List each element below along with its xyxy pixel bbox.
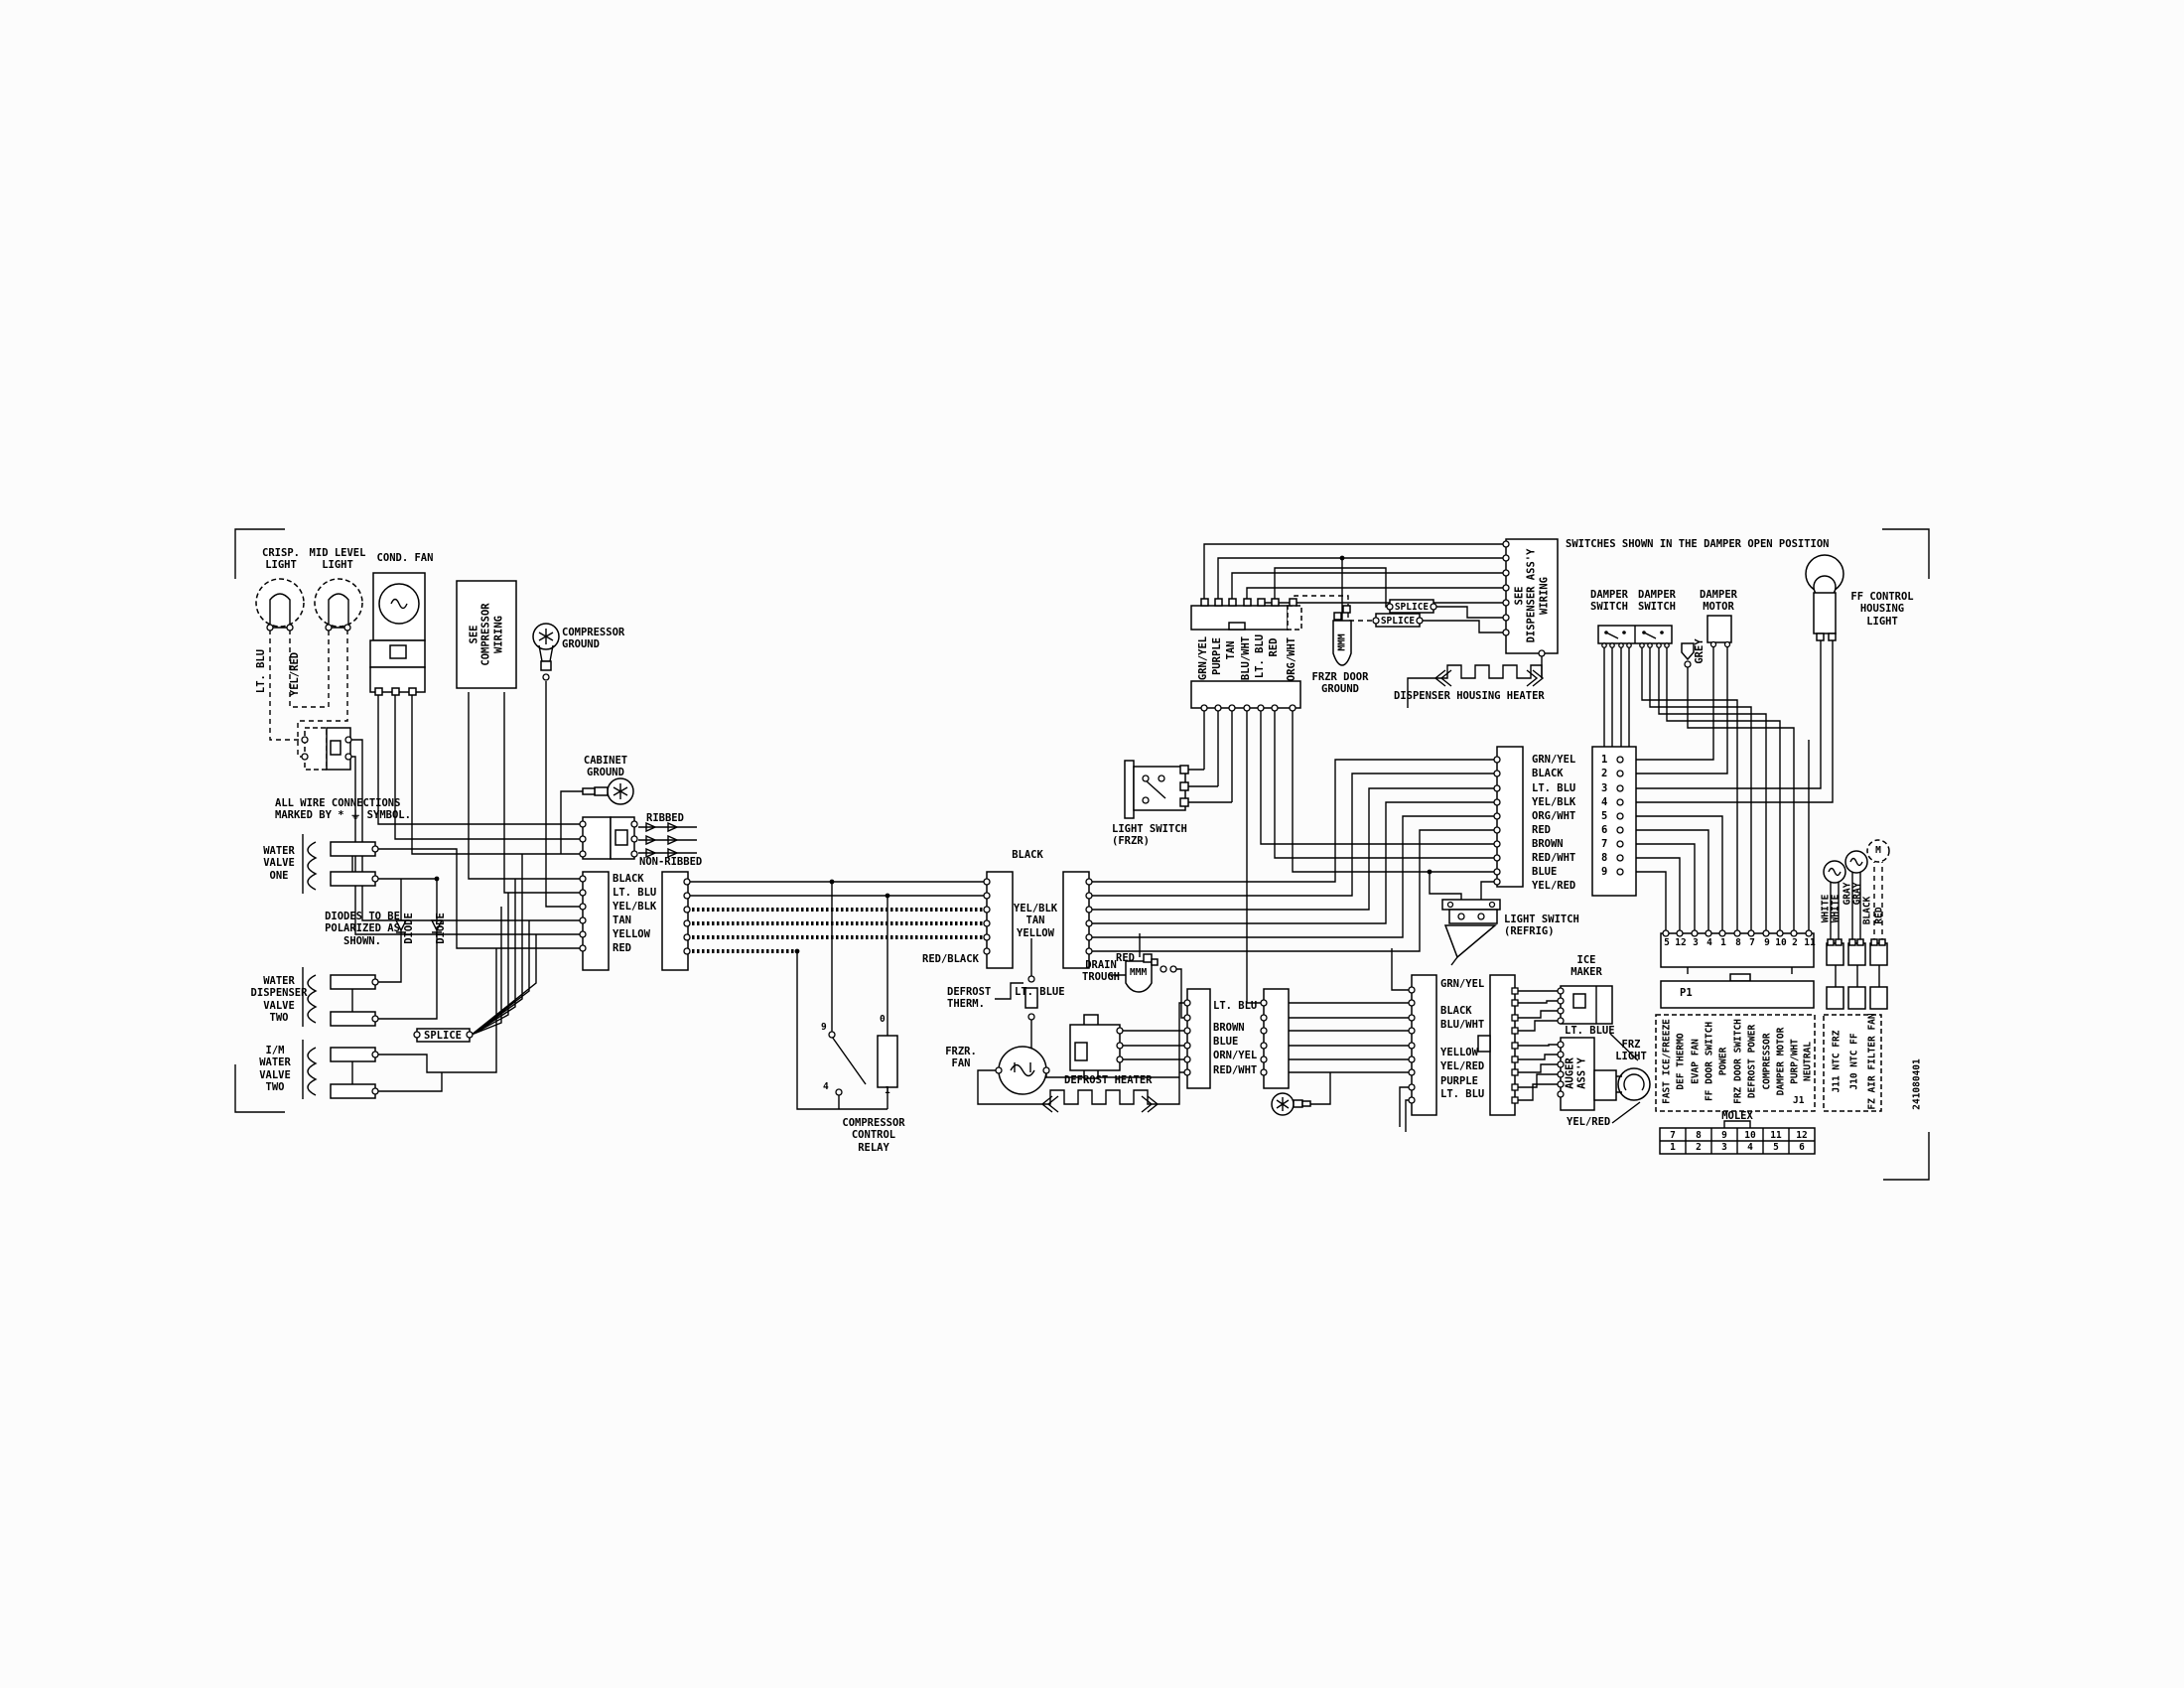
light-switch-frzr-symbol [1125, 761, 1188, 818]
lt-blue-label-mid: LT. BLUE [1015, 986, 1065, 998]
damper-switch-assembly [1598, 626, 1672, 643]
molex-top-1: 8 [1696, 1130, 1702, 1141]
disp-conn-orgwht: ORG/WHT [1286, 637, 1297, 681]
mmm-door-label: MMM [1336, 633, 1347, 650]
j11-signal-2: FZ AIR FILTER FAN [1866, 1013, 1877, 1109]
main-pin-4: 4 [1601, 796, 1607, 808]
p1-label: P1 [1680, 987, 1693, 999]
j1-signal-7: COMPRESSOR [1761, 1033, 1772, 1089]
molex-top-0: 7 [1670, 1130, 1676, 1141]
auger-conn-yelred: YEL/RED [1440, 1060, 1484, 1072]
water-dispenser-valve-two-label: WATER DISPENSER VALVE TWO [251, 975, 308, 1025]
harness-color-ltblu: LT. BLU [613, 887, 656, 899]
j1-signal-3: FF DOOR SWITCH [1704, 1022, 1714, 1101]
defrost-conn-ltblu: LT. BLU [1213, 1000, 1257, 1012]
compressor-control-relay-label: COMPRESSOR CONTROL RELAY [842, 1117, 904, 1154]
yel-red-label-right: YEL/RED [1567, 1116, 1610, 1128]
j1-signal-1: DEF THERMO [1675, 1033, 1686, 1089]
splice-label-left: SPLICE [424, 1030, 462, 1042]
crisp-light-bulb [256, 579, 304, 628]
defrost-connector-b [1264, 989, 1289, 1088]
disp-conn-red: RED [1268, 638, 1280, 657]
defrost-heater-label: DEFROST HEATER [1064, 1074, 1153, 1086]
defrost-conn-redwht: RED/WHT [1213, 1064, 1257, 1076]
board-pin-4: 1 [1720, 937, 1726, 948]
main-color-6: BROWN [1532, 838, 1564, 850]
auger-conn-purple: PURPLE [1440, 1075, 1478, 1087]
crisp-light-label: CRISP. LIGHT [262, 547, 300, 572]
main-pin-7: 7 [1601, 838, 1607, 850]
board-pin-5: 8 [1735, 937, 1741, 948]
disp-conn-grnyel: GRN/YEL [1197, 636, 1209, 680]
main-connector-colors [1497, 747, 1523, 887]
auger-assy-label: AUGER ASS'Y [1565, 1057, 1589, 1089]
diode-note: DIODES TO BE POLARIZED AS SHOWN. [325, 911, 400, 947]
board-pin-2: 3 [1693, 937, 1699, 948]
damper-switch-label-1: DAMPER SWITCH [1590, 589, 1628, 614]
wiring-diagram-art [0, 0, 2184, 1688]
im-water-valve-two-label: I/M WATER VALVE TWO [259, 1045, 291, 1094]
red-black-label: RED/BLACK [922, 953, 979, 965]
black-wire-label: BLACK [1012, 849, 1043, 861]
harness-connector-left [662, 872, 688, 970]
molex-bottom-5: 6 [1799, 1142, 1805, 1153]
auger-conn-black: BLACK [1440, 1005, 1472, 1017]
frzr-door-ground-label: FRZR DOOR GROUND [1312, 671, 1369, 696]
main-color-9: YEL/RED [1532, 880, 1575, 892]
lt-blue-label-right: LT. BLUE [1565, 1025, 1615, 1037]
j1-signal-0: FAST ICE/FREEZE [1661, 1019, 1672, 1104]
harness-color-yellow: YELLOW [613, 928, 650, 940]
white-wire-label-2: WHITE [1830, 895, 1841, 923]
defrost-conn-blue: BLUE [1213, 1036, 1238, 1048]
molex-bottom-2: 3 [1721, 1142, 1727, 1153]
molex-bottom-1: 2 [1696, 1142, 1702, 1153]
defrost-conn-brown: BROWN [1213, 1022, 1245, 1034]
disp-conn-ltblu: LT. BLU [1254, 634, 1266, 678]
j1-signal-10: NEUTRAL [1802, 1042, 1813, 1081]
main-pin-2: 2 [1601, 768, 1607, 779]
ff-control-housing-light-label: FF CONTROL HOUSING LIGHT [1850, 591, 1913, 628]
water-valve-one [303, 834, 375, 894]
relay-pin-1: 1 [885, 1085, 890, 1096]
light-switch-refrig-label: LIGHT SWITCH (REFRIG) [1504, 914, 1579, 938]
diode-label-1: DIODE [403, 913, 415, 944]
grey-label: GREY [1694, 638, 1706, 663]
j1-label: J1 [1793, 1095, 1804, 1106]
relay-pin-0: 0 [880, 1014, 886, 1025]
freezer-fan-motor [999, 1047, 1046, 1094]
light-switch-frzr-label: LIGHT SWITCH (FRZR) [1112, 823, 1187, 848]
harness-color-black: BLACK [613, 873, 644, 885]
j11-signal-0: J11 NTC FRZ [1831, 1031, 1842, 1093]
light-switch-refrig-symbol [1442, 900, 1500, 965]
yelblk-tan-yellow-label: YEL/BLK TAN YELLOW [1014, 903, 1057, 939]
board-pin-7: 9 [1764, 937, 1770, 948]
see-dispenser-wiring-label: SEE DISPENSER ASS'Y WIRING [1513, 549, 1550, 643]
diode-label-2: DIODE [435, 913, 447, 944]
harness-color-yelblk: YEL/BLK [613, 901, 656, 913]
molex-top-5: 12 [1796, 1130, 1807, 1141]
molex-label: MOLEX [1721, 1110, 1753, 1122]
mmm-drain-label: MMM [1130, 967, 1147, 978]
part-number-label: 241080401 [1911, 1058, 1922, 1109]
evap-ground-lug [1272, 1093, 1310, 1115]
three-pin-connector [583, 817, 634, 859]
compressor-ground-lug [533, 624, 559, 670]
auger-conn-yellow: YELLOW [1440, 1047, 1478, 1058]
board-pin-1: 12 [1675, 937, 1686, 948]
main-pin-3: 3 [1601, 782, 1607, 794]
board-pin-9: 2 [1792, 937, 1798, 948]
auger-conn-grnyel: GRN/YEL [1440, 978, 1484, 990]
motor-m-label: M [1875, 845, 1881, 856]
molex-top-2: 9 [1721, 1130, 1727, 1141]
main-color-4: ORG/WHT [1532, 810, 1575, 822]
defrost-heater-housing [1070, 1015, 1120, 1078]
j1-signal-5: FRZ DOOR SWITCH [1732, 1019, 1743, 1104]
im-water-valve-two [303, 1040, 375, 1099]
molex-bottom-3: 4 [1747, 1142, 1753, 1153]
j1-signal-4: POWER [1717, 1048, 1728, 1076]
drain-trough-label: DRAIN TROUGH [1082, 959, 1120, 984]
main-pin-1: 1 [1601, 754, 1607, 766]
main-pin-5: 5 [1601, 810, 1607, 822]
six-pin-connector [583, 872, 609, 970]
cabinet-ground-label: CABINET GROUND [584, 755, 627, 779]
auger-conn-ltblu: LT. BLU [1440, 1088, 1484, 1100]
auger-conn-bluwht: BLU/WHT [1440, 1019, 1484, 1031]
mid-level-light-label: MID LEVEL LIGHT [310, 547, 366, 572]
defrost-conn-ornyel: ORN/YEL [1213, 1050, 1257, 1061]
black-wire-label-sensor: BLACK [1861, 897, 1872, 925]
main-color-2: LT. BLU [1532, 782, 1575, 794]
frz-light-symbol [1594, 1068, 1650, 1100]
main-pin-9: 9 [1601, 866, 1607, 878]
wiring-diagram-page: CRISP. LIGHT MID LEVEL LIGHT COND. FAN S… [0, 0, 2184, 1688]
lt-blu-label-topleft: LT. BLU [255, 649, 267, 693]
board-pin-3: 4 [1706, 937, 1712, 948]
defrost-therm-label: DEFROST THERM. [947, 986, 991, 1011]
j1-signal-8: DAMPER MOTOR [1775, 1028, 1786, 1096]
harness-connector-mid-a [987, 872, 1013, 968]
red-label-drain: RED [1116, 952, 1135, 964]
ribbed-terminals [638, 823, 697, 857]
relay-pin-4: 4 [823, 1081, 829, 1092]
board-pin-6: 7 [1749, 937, 1755, 948]
water-valve-one-label: WATER VALVE ONE [263, 845, 295, 882]
j1-signal-2: EVAP FAN [1690, 1039, 1701, 1084]
board-pin-10: 11 [1804, 937, 1815, 948]
harness-color-red: RED [613, 942, 631, 954]
dispenser-connector-bottom [1191, 681, 1300, 708]
molex-top-4: 11 [1770, 1130, 1781, 1141]
main-connector-pins [1592, 747, 1636, 896]
j1-signal-6: DEFROST POWER [1746, 1025, 1757, 1098]
condenser-fan-motor [370, 573, 425, 695]
damper-switch-label-2: DAMPER SWITCH [1638, 589, 1676, 614]
board-pin-8: 10 [1775, 937, 1786, 948]
splice-label-1: SPLICE [1395, 602, 1429, 613]
main-pin-8: 8 [1601, 852, 1607, 864]
mid-level-light-bulb [315, 579, 362, 628]
dispenser-housing-heater-element [1435, 665, 1543, 686]
dispenser-housing-heater-label: DISPENSER HOUSING HEATER [1394, 690, 1545, 702]
main-color-5: RED [1532, 824, 1551, 836]
ice-maker-label: ICE MAKER [1570, 954, 1602, 979]
non-ribbed-label: NON-RIBBED [639, 856, 702, 868]
j11-signal-1: J10 NTC FF [1848, 1033, 1859, 1089]
damper-motor-box [1707, 616, 1731, 642]
defrost-heater-element [1035, 1090, 1160, 1112]
harness-connector-mid-b [1063, 872, 1089, 968]
disp-conn-tan: TAN [1225, 641, 1237, 660]
splice-label-2: SPLICE [1381, 616, 1415, 627]
cabinet-ground-lug [583, 778, 633, 804]
ff-control-housing-light-symbol [1806, 555, 1843, 640]
j1-signal-9: PURP/WHT [1789, 1039, 1800, 1084]
main-color-0: GRN/YEL [1532, 754, 1575, 766]
disp-conn-purple: PURPLE [1211, 637, 1223, 675]
red-wire-label-sensor: RED [1873, 907, 1884, 923]
relay-pin-9: 9 [821, 1022, 827, 1033]
ice-maker-symbol [1561, 986, 1612, 1024]
cond-fan-label: COND. FAN [377, 552, 434, 564]
main-color-7: RED/WHT [1532, 852, 1575, 864]
harness-hatched-wires [687, 910, 987, 951]
yel-red-label-topleft: YEL/RED [289, 652, 301, 696]
molex-top-3: 10 [1744, 1130, 1755, 1141]
frzr-fan-label: FRZR. FAN [945, 1046, 977, 1070]
switches-note: SWITCHES SHOWN IN THE DAMPER OPEN POSITI… [1566, 538, 1830, 550]
see-compressor-wiring-label: SEE COMPRESSOR WIRING [468, 603, 504, 665]
compressor-ground-label: COMPRESSOR GROUND [562, 627, 624, 651]
main-color-3: YEL/BLK [1532, 796, 1575, 808]
molex-bottom-0: 1 [1670, 1142, 1676, 1153]
light-relay-block [305, 728, 350, 770]
ribbed-label: RIBBED [646, 812, 684, 824]
wire-connections-note: ALL WIRE CONNECTIONS MARKED BY * ⏚ SYMBO… [275, 797, 411, 822]
main-color-1: BLACK [1532, 768, 1564, 779]
damper-motor-label: DAMPER MOTOR [1700, 589, 1737, 614]
main-color-8: BLUE [1532, 866, 1557, 878]
grey-wire-connector [1682, 643, 1694, 659]
main-pin-6: 6 [1601, 824, 1607, 836]
frz-light-label: FRZ LIGHT [1615, 1039, 1647, 1063]
molex-table [1660, 1121, 1815, 1154]
harness-color-tan: TAN [613, 914, 631, 926]
water-dispenser-valve-two [303, 967, 375, 1027]
compressor-control-relay [878, 1036, 897, 1087]
molex-bottom-4: 5 [1773, 1142, 1779, 1153]
board-pin-0: 5 [1664, 937, 1670, 948]
disp-conn-bluwht: BLU/WHT [1240, 636, 1252, 680]
